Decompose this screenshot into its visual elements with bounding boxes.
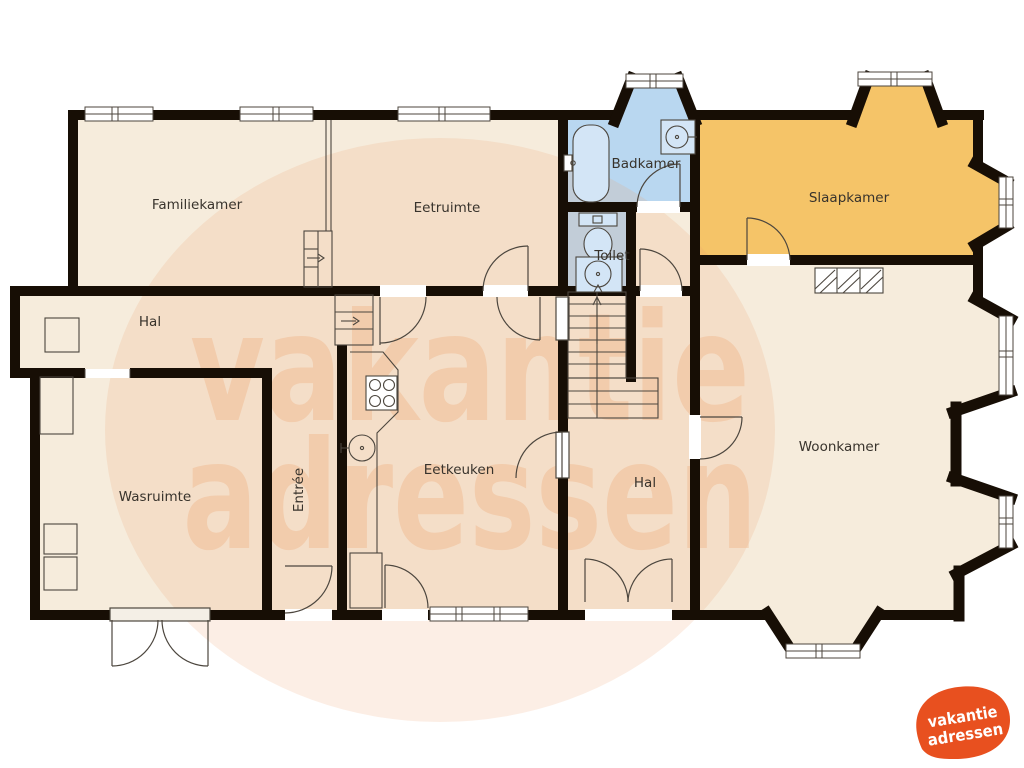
room-label-badkamer: Badkamer <box>612 156 681 172</box>
wall-opening <box>85 369 130 378</box>
logo-badge: vakantie adressen <box>916 686 1010 759</box>
sink-icon <box>661 120 697 154</box>
room-label-wasruimte: Wasruimte <box>119 489 191 505</box>
window <box>858 72 932 86</box>
watermark: vakantie adressen <box>105 138 775 722</box>
window <box>626 74 683 88</box>
door-opening <box>556 297 569 340</box>
window <box>999 177 1013 228</box>
window <box>999 316 1013 395</box>
window <box>999 496 1013 548</box>
room-label-woonkamer: Woonkamer <box>799 439 880 455</box>
room-label-toilet: Toilet <box>593 248 629 264</box>
room-label-familiekamer: Familiekamer <box>152 197 243 213</box>
door-threshold <box>110 608 210 621</box>
room-label-hal-center: Hal <box>634 475 656 491</box>
room-label-eetkeuken: Eetkeuken <box>424 462 495 478</box>
radiator-icon <box>815 268 883 293</box>
window <box>430 607 528 621</box>
room-label-hal-top: Hal <box>139 314 161 330</box>
floorplan-svg: vakantie adressen <box>0 0 1024 768</box>
room-slaapkamer <box>695 78 1006 260</box>
window <box>240 107 313 121</box>
window <box>85 107 153 121</box>
room-label-entree: Entrée <box>291 468 307 512</box>
floorplan-page: vakantie adressen <box>0 0 1024 768</box>
room-label-slaapkamer: Slaapkamer <box>809 190 890 206</box>
room-label-eetruimte: Eetruimte <box>414 200 481 216</box>
stove-icon <box>366 376 397 410</box>
window <box>786 644 860 658</box>
window <box>398 107 490 121</box>
